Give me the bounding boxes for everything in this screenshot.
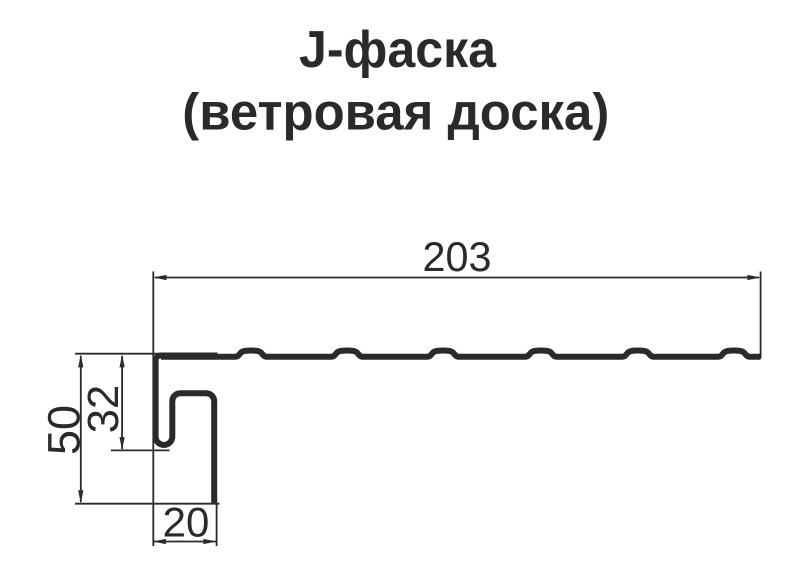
svg-text:32: 32 [80, 385, 128, 433]
svg-text:J-фаска: J-фаска [299, 21, 497, 79]
svg-text:20: 20 [163, 499, 210, 546]
svg-text:(ветровая доска): (ветровая доска) [182, 84, 609, 142]
svg-text:203: 203 [423, 233, 492, 280]
